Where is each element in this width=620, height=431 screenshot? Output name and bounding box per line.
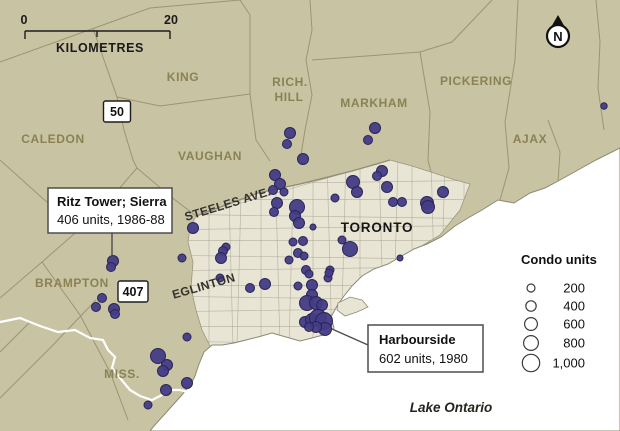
scale-end: 20 — [164, 13, 178, 27]
callout-harbourside-detail: 602 units, 1980 — [379, 351, 468, 366]
legend-circle-600 — [525, 318, 538, 331]
gta-condo-map: CALEDON KING RICH. HILL MARKHAM PICKERIN… — [0, 0, 620, 431]
callout-ritz-detail: 406 units, 1986-88 — [57, 212, 165, 227]
scale-unit: KILOMETRES — [56, 41, 144, 55]
label-lake-ontario: Lake Ontario — [410, 400, 493, 415]
north-arrow-label: N — [553, 29, 562, 44]
legend-circle-200 — [527, 284, 535, 292]
legend-value-400: 400 — [563, 299, 585, 314]
scale-start: 0 — [21, 13, 28, 27]
highway-50-number: 50 — [110, 105, 124, 119]
label-caledon: CALEDON — [21, 132, 85, 146]
legend-circle-800 — [524, 336, 539, 351]
label-markham: MARKHAM — [340, 96, 408, 110]
legend-circle-400 — [526, 301, 536, 311]
legend-circle-1000 — [522, 354, 539, 371]
label-ajax: AJAX — [513, 132, 547, 146]
legend-value-200: 200 — [563, 281, 585, 296]
legend-title: Condo units — [521, 252, 597, 267]
label-mississauga: MISS. — [104, 367, 140, 381]
map-canvas: CALEDON KING RICH. HILL MARKHAM PICKERIN… — [0, 0, 620, 431]
highway-407-number: 407 — [123, 285, 144, 299]
label-toronto: TORONTO — [341, 220, 414, 235]
highway-407-shield: 407 — [118, 281, 148, 302]
label-richmond-hill-1: RICH. — [272, 75, 308, 89]
label-brampton: BRAMPTON — [35, 276, 109, 290]
label-vaughan: VAUGHAN — [178, 149, 242, 163]
label-richmond-hill-2: HILL — [274, 90, 303, 104]
legend-value-800: 800 — [563, 336, 585, 351]
legend-value-1000: 1,000 — [552, 356, 585, 371]
label-king: KING — [167, 70, 199, 84]
highway-50-shield: 50 — [104, 101, 131, 122]
label-pickering: PICKERING — [440, 74, 512, 88]
callout-harbourside-title: Harbourside — [379, 332, 456, 347]
callout-ritz-title: Ritz Tower; Sierra — [57, 194, 167, 209]
legend-value-600: 600 — [563, 317, 585, 332]
